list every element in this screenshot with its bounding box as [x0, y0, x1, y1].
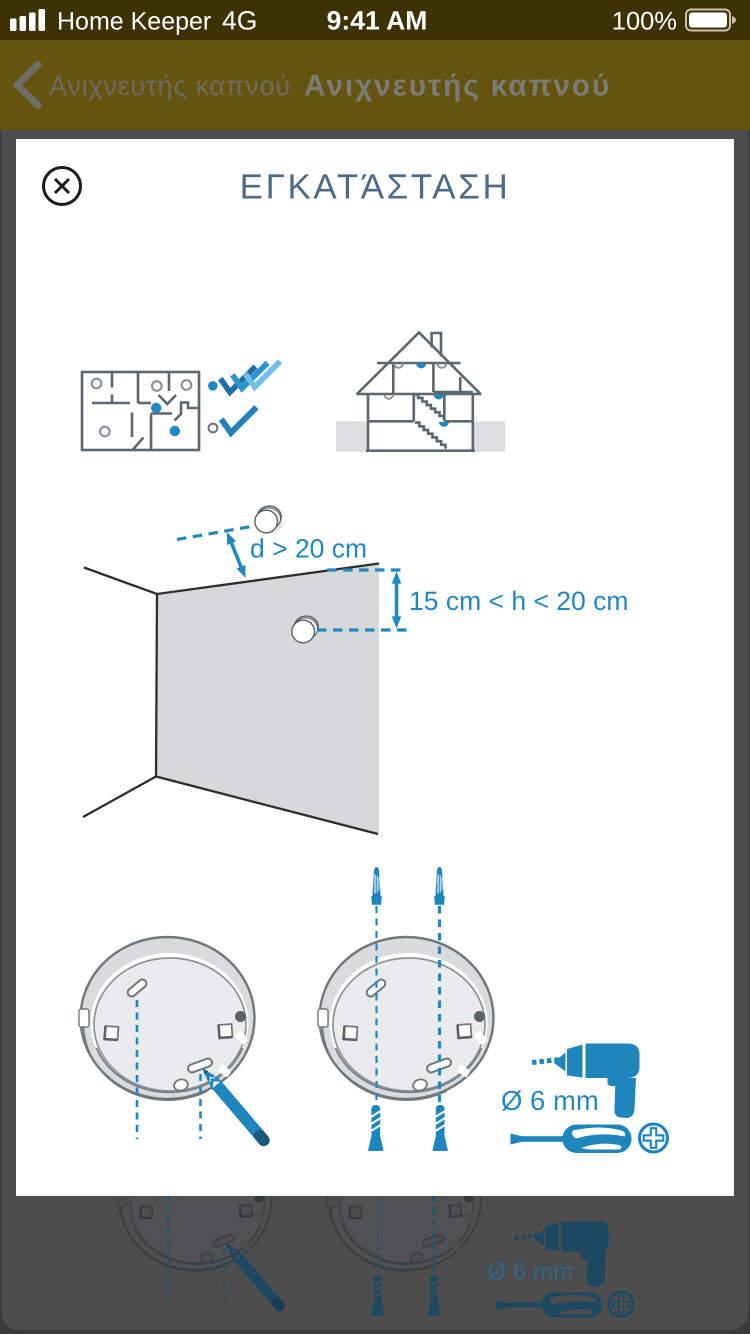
svg-text:Ø 6 mm: Ø 6 mm	[487, 1258, 573, 1285]
svg-text:Home Keeper: Home Keeper	[57, 8, 211, 36]
svg-text:100%: 100%	[612, 8, 677, 36]
svg-text:d > 20 cm: d > 20 cm	[250, 534, 367, 564]
svg-text:4G: 4G	[222, 6, 257, 36]
svg-text:Ανιχνευτής καπνού: Ανιχνευτής καπνού	[49, 71, 291, 101]
svg-text:Ø 6 mm: Ø 6 mm	[501, 1085, 599, 1116]
svg-text:ΕΓΚΑΤΆΣΤΑΣΗ: ΕΓΚΑΤΆΣΤΑΣΗ	[240, 168, 511, 207]
svg-text:15 cm < h < 20 cm: 15 cm < h < 20 cm	[409, 586, 628, 616]
svg-text:Ανιχνευτής καπνού: Ανιχνευτής καπνού	[304, 70, 611, 103]
svg-text:9:41 AM: 9:41 AM	[327, 6, 428, 36]
